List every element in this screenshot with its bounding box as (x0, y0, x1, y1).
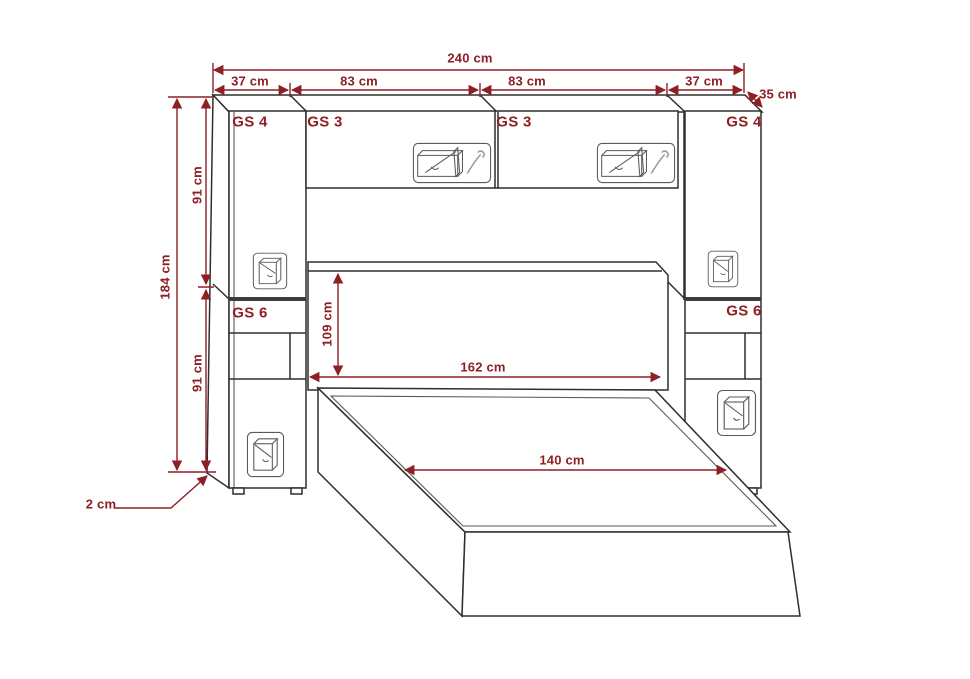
unit-label-left-bridge: GS 3 (307, 115, 342, 130)
dim-total-height-label: 184 cm (159, 254, 172, 299)
dim-right-center-width-label: 83 cm (508, 75, 546, 88)
furniture-dimension-diagram: 240 cm 37 cm 83 cm 83 cm 37 cm 35 cm 184… (0, 0, 970, 679)
unit-label-right-bridge: GS 3 (496, 115, 531, 130)
dim-plinth-label: 2 cm (86, 498, 116, 511)
dim-right-side-width-label: 37 cm (685, 75, 723, 88)
furniture-line-art (0, 0, 970, 679)
unit-label-right-upper: GS 4 (726, 115, 761, 130)
dim-left-side-width-label: 37 cm (231, 75, 269, 88)
unit-label-left-lower: GS 6 (232, 306, 267, 321)
dim-upper-height-label: 91 cm (191, 166, 204, 204)
unit-label-right-lower: GS 6 (726, 304, 761, 319)
dim-bed-width-label: 140 cm (539, 454, 584, 467)
left-column (207, 95, 306, 494)
left-column-foot (233, 488, 244, 494)
left-column-foot (291, 488, 302, 494)
right-column-divider (685, 297, 761, 301)
top-face (213, 95, 762, 112)
left-column-side-face (207, 95, 229, 488)
dim-total-width (213, 63, 744, 93)
dim-headboard-height-label: 109 cm (321, 301, 334, 346)
dim-total-width-label: 240 cm (447, 52, 492, 65)
left-column-divider (229, 297, 306, 301)
dim-depth-label: 35 cm (759, 88, 797, 101)
leader-plinth (114, 476, 207, 508)
headboard-right-joint (668, 282, 685, 299)
dim-lower-height-label: 91 cm (191, 354, 204, 392)
bed-front-face (462, 532, 800, 616)
unit-label-left-upper: GS 4 (232, 115, 267, 130)
dim-left-center-width-label: 83 cm (340, 75, 378, 88)
dim-headboard-width-label: 162 cm (460, 361, 505, 374)
